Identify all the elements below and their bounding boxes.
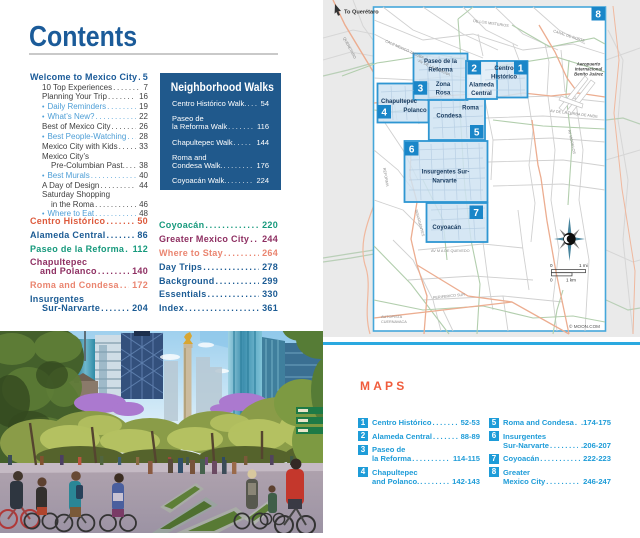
svg-text:Chapultepec: Chapultepec bbox=[381, 99, 418, 105]
svg-text:6: 6 bbox=[409, 145, 415, 156]
svg-text:© MOON.COM: © MOON.COM bbox=[569, 323, 600, 329]
svg-text:Narvarte: Narvarte bbox=[432, 179, 457, 185]
svg-text:1 km: 1 km bbox=[566, 278, 576, 283]
svg-text:CUERNAVACA: CUERNAVACA bbox=[381, 320, 407, 324]
svg-text:Histórico: Histórico bbox=[491, 75, 517, 81]
svg-text:Roma: Roma bbox=[462, 106, 479, 112]
svg-text:Alameda: Alameda bbox=[469, 83, 495, 89]
svg-text:3: 3 bbox=[418, 84, 424, 95]
svg-text:0: 0 bbox=[550, 278, 553, 283]
svg-text:AV M A DE QUEVEDO: AV M A DE QUEVEDO bbox=[431, 249, 470, 253]
svg-text:8: 8 bbox=[595, 10, 601, 21]
svg-text:Zona: Zona bbox=[436, 82, 451, 88]
svg-text:Coyoacán: Coyoacán bbox=[432, 225, 461, 231]
svg-text:AUTOPISTA: AUTOPISTA bbox=[381, 315, 403, 319]
svg-text:7: 7 bbox=[473, 208, 479, 219]
svg-text:4: 4 bbox=[381, 108, 387, 119]
svg-text:1 mi: 1 mi bbox=[579, 263, 588, 268]
svg-text:1: 1 bbox=[518, 64, 524, 75]
svg-text:Benito Juárez: Benito Juárez bbox=[574, 72, 604, 77]
svg-text:Polanco: Polanco bbox=[403, 108, 427, 114]
svg-text:5: 5 bbox=[474, 128, 480, 139]
svg-text:Insurgentes Sur-: Insurgentes Sur- bbox=[422, 170, 470, 176]
svg-text:To Querétaro: To Querétaro bbox=[344, 10, 379, 16]
svg-text:Central: Central bbox=[471, 91, 492, 97]
svg-text:Rosa: Rosa bbox=[436, 91, 451, 97]
svg-text:Centro: Centro bbox=[494, 66, 514, 72]
svg-text:0: 0 bbox=[550, 263, 553, 268]
svg-text:Condesa: Condesa bbox=[436, 114, 462, 120]
svg-text:2: 2 bbox=[471, 64, 477, 75]
